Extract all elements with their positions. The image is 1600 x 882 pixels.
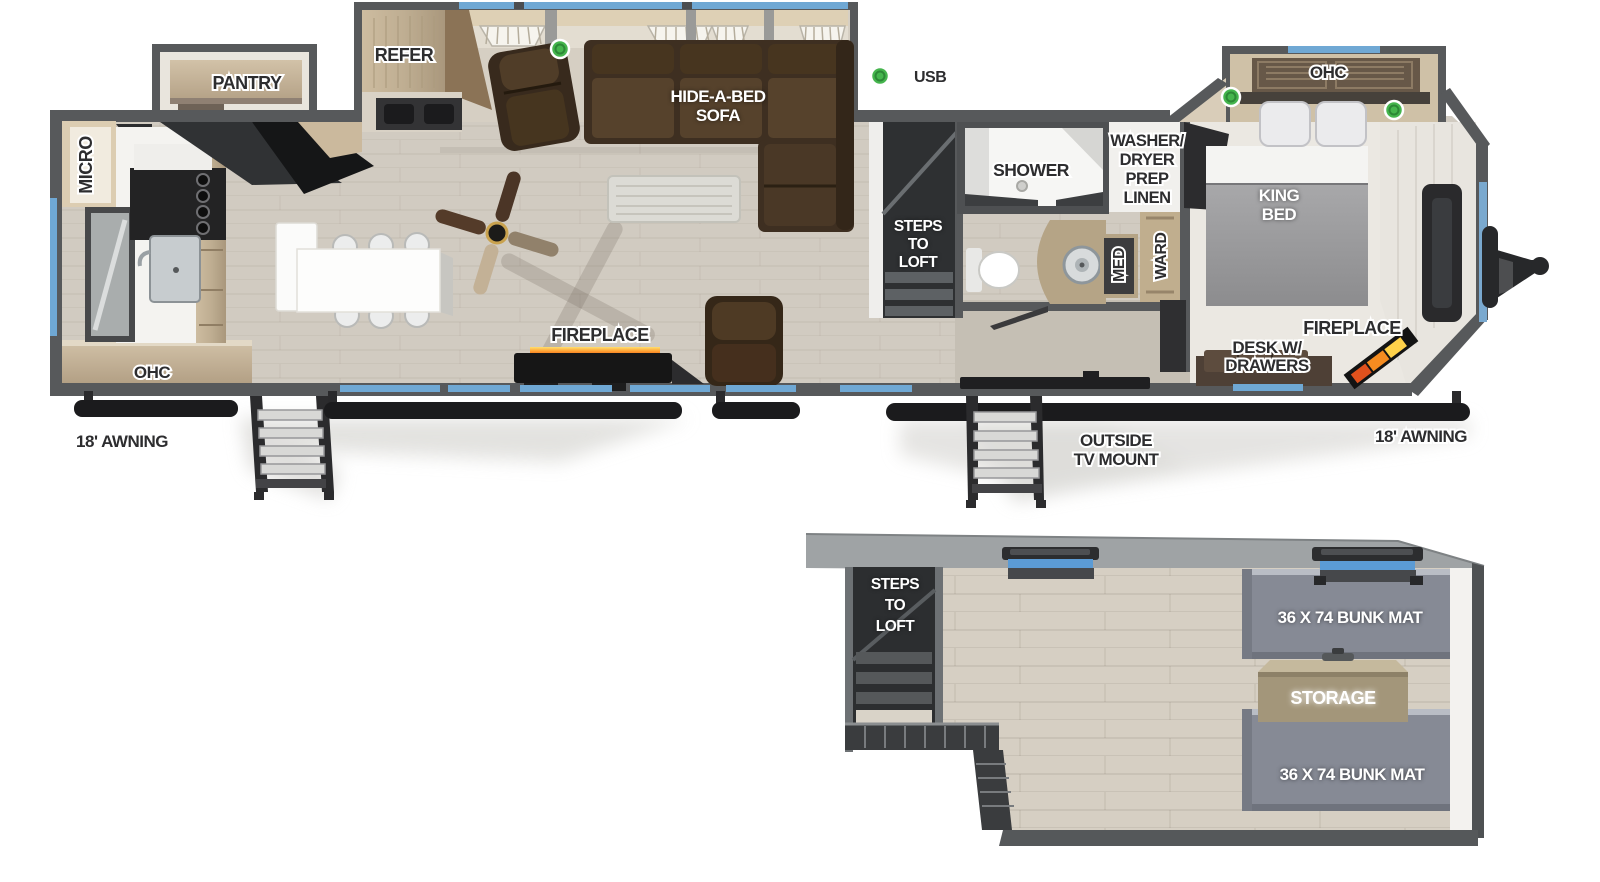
svg-text:DRYER: DRYER — [1120, 151, 1175, 169]
svg-text:BED: BED — [1262, 205, 1297, 224]
svg-text:STEPS: STEPS — [871, 576, 919, 593]
svg-text:36 X 74 BUNK MAT: 36 X 74 BUNK MAT — [1278, 608, 1424, 627]
svg-text:REFER: REFER — [375, 45, 434, 65]
svg-text:WARD: WARD — [1153, 233, 1170, 280]
svg-text:FIREPLACE: FIREPLACE — [1303, 318, 1401, 338]
svg-text:USB: USB — [914, 69, 946, 86]
svg-text:KING: KING — [1259, 186, 1300, 205]
svg-text:MED: MED — [1111, 248, 1128, 282]
svg-text:36 X 74 BUNK MAT: 36 X 74 BUNK MAT — [1280, 765, 1426, 784]
svg-text:OUTSIDE: OUTSIDE — [1080, 431, 1152, 450]
svg-text:WASHER/: WASHER/ — [1110, 132, 1184, 150]
svg-text:FIREPLACE: FIREPLACE — [551, 325, 649, 345]
svg-text:LOFT: LOFT — [899, 254, 938, 271]
svg-text:PANTRY: PANTRY — [213, 73, 282, 93]
svg-text:TV MOUNT: TV MOUNT — [1074, 450, 1160, 469]
svg-text:PREP: PREP — [1126, 170, 1169, 188]
svg-text:OHC: OHC — [134, 363, 171, 382]
svg-text:TO: TO — [908, 236, 929, 253]
svg-text:18' AWNING: 18' AWNING — [1375, 427, 1467, 446]
svg-text:LINEN: LINEN — [1124, 189, 1171, 207]
svg-text:SOFA: SOFA — [696, 106, 741, 125]
svg-text:MICRO: MICRO — [76, 136, 96, 194]
svg-text:STEPS: STEPS — [894, 218, 942, 235]
svg-text:DRAWERS: DRAWERS — [1225, 356, 1309, 375]
svg-text:OHC: OHC — [1310, 63, 1347, 82]
svg-text:HIDE-A-BED: HIDE-A-BED — [670, 87, 765, 106]
svg-text:DESK W/: DESK W/ — [1232, 338, 1302, 357]
svg-text:TO: TO — [885, 597, 906, 614]
svg-text:18' AWNING: 18' AWNING — [76, 432, 168, 451]
svg-text:SHOWER: SHOWER — [993, 160, 1070, 180]
svg-text:STORAGE: STORAGE — [1290, 688, 1376, 708]
svg-text:LOFT: LOFT — [876, 618, 915, 635]
